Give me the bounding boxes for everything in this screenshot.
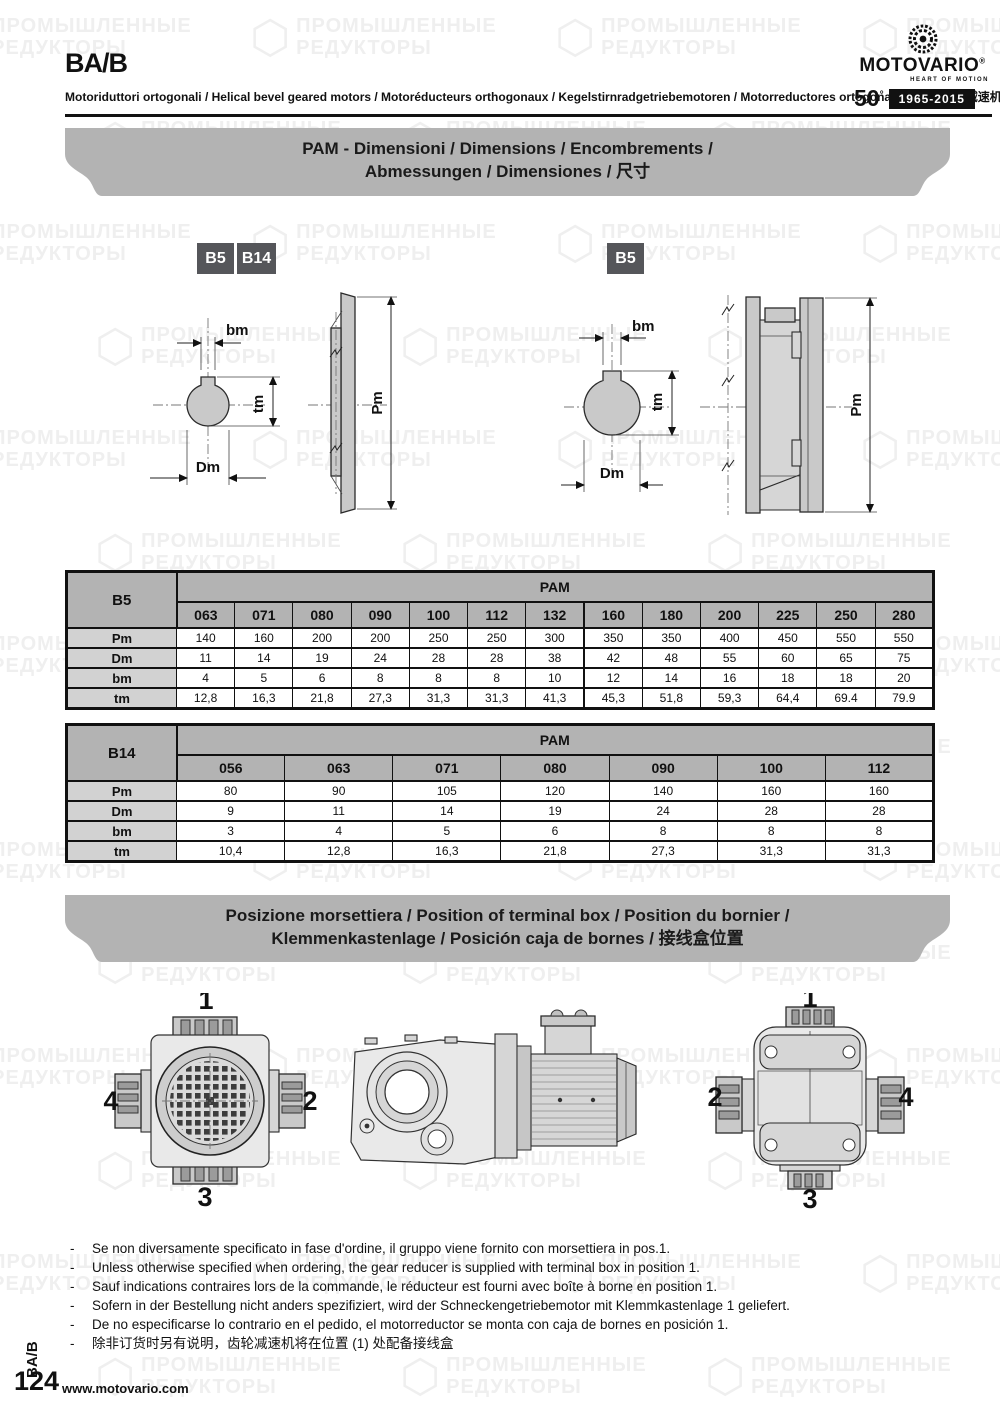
svg-text:Pm: Pm <box>369 391 386 414</box>
dimension-bm: bm <box>579 318 655 365</box>
position-number-4: 4 <box>103 1086 118 1116</box>
website-link[interactable]: www.motovario.com <box>62 1381 189 1396</box>
table-group-header: PAM <box>177 725 934 756</box>
table-cell: 55 <box>700 648 758 668</box>
terminal-box-banner: Posizione morsettiera / Position of term… <box>65 895 950 962</box>
table-cell: 24 <box>351 648 409 668</box>
table-cell: 10 <box>526 668 584 688</box>
motor-housing <box>151 1035 269 1167</box>
table-cell: 18 <box>817 668 875 688</box>
column-header: 112 <box>825 755 933 781</box>
table-cell: 8 <box>717 821 825 841</box>
svg-text:bm: bm <box>226 322 249 339</box>
terminal-box-left <box>115 1070 151 1132</box>
row-label: Dm <box>67 648 177 668</box>
column-header: 100 <box>409 602 467 628</box>
table-cell: 3 <box>177 821 285 841</box>
table-cell: 8 <box>609 821 717 841</box>
motor-body <box>754 1027 866 1165</box>
page-number: 124 <box>14 1366 59 1397</box>
column-header: 250 <box>817 602 875 628</box>
table-cell: 28 <box>825 801 933 821</box>
table-cell: 51,8 <box>642 688 700 709</box>
b14-table-section: B14PAM056063071080090100112Pm80901051201… <box>65 723 935 863</box>
table-cell: 200 <box>351 628 409 648</box>
brand-name: MOTOVARIO® <box>850 56 995 75</box>
table-cell: 11 <box>177 648 235 668</box>
column-header: 180 <box>642 602 700 628</box>
b14-dimension-table: B14PAM056063071080090100112Pm80901051201… <box>65 723 935 863</box>
dimension-drawing-b5: bm tm Dm <box>560 280 890 530</box>
footnote-de: -Sofern in der Bestellung nicht anders s… <box>70 1296 790 1315</box>
table-cell: 24 <box>609 801 717 821</box>
row-label: tm <box>67 841 177 862</box>
motor-terminal-box <box>541 1010 595 1054</box>
table-cell: 250 <box>468 628 526 648</box>
table-cell: 28 <box>468 648 526 668</box>
table-cell: 6 <box>501 821 609 841</box>
table-cell: 160 <box>235 628 293 648</box>
table-cell: 14 <box>235 648 293 668</box>
table-cell: 10,4 <box>177 841 285 862</box>
table-cell: 350 <box>584 628 642 648</box>
footnote-fr: -Sauf indications contraires lors de la … <box>70 1277 790 1296</box>
anniversary-number: 50° <box>854 87 884 110</box>
column-header: 071 <box>235 602 293 628</box>
terminal-banner-text: Posizione morsettiera / Position of term… <box>65 904 950 950</box>
motovario-logo: MOTOVARIO® HEART OF MOTION 50° 1965-2015 <box>850 22 995 110</box>
table-cell: 140 <box>177 628 235 648</box>
table-cell: 12 <box>584 668 642 688</box>
footnote-it: -Se non diversamente specificato in fase… <box>70 1239 790 1258</box>
shaft-section <box>187 377 229 426</box>
table-cell: 200 <box>293 628 351 648</box>
gearbox-body <box>351 1035 503 1164</box>
column-header: 200 <box>700 602 758 628</box>
svg-text:tm: tm <box>649 393 666 411</box>
table-cell: 18 <box>759 668 817 688</box>
dimension-pm: Pm <box>825 298 877 512</box>
table-cell: 31,3 <box>717 841 825 862</box>
shaft-section <box>584 371 640 435</box>
table-cell: 14 <box>642 668 700 688</box>
footnotes: -Se non diversamente specificato in fase… <box>70 1239 790 1353</box>
column-header: 280 <box>875 602 933 628</box>
terminal-box-right <box>269 1070 305 1132</box>
dimension-bm: bm <box>177 322 249 370</box>
table-cell: 75 <box>875 648 933 668</box>
table-cell: 16,3 <box>393 841 501 862</box>
dimension-dm: Dm <box>561 440 663 492</box>
position-number-3: 3 <box>197 1182 212 1211</box>
table-cell: 41,3 <box>526 688 584 709</box>
table-cell: 5 <box>235 668 293 688</box>
table-cell: 550 <box>875 628 933 648</box>
table-cell: 69.4 <box>817 688 875 709</box>
table-cell: 16 <box>700 668 758 688</box>
table-cell: 8 <box>409 668 467 688</box>
motor-flange <box>495 1034 531 1158</box>
position-number-1: 1 <box>802 993 817 1013</box>
table-cell: 250 <box>409 628 467 648</box>
table-cell: 6 <box>293 668 351 688</box>
terminal-position-rear-view: 1 2 3 4 <box>95 993 325 1211</box>
table-cell: 8 <box>825 821 933 841</box>
geared-motor-side-view <box>345 1008 665 1188</box>
column-header: 090 <box>609 755 717 781</box>
dimension-pm: Pm <box>357 297 397 509</box>
table-cell: 45,3 <box>584 688 642 709</box>
pam-banner-text: PAM - Dimensioni / Dimensions / Encombre… <box>65 137 950 183</box>
table-cell: 31,3 <box>468 688 526 709</box>
table-cell: 550 <box>817 628 875 648</box>
svg-text:Dm: Dm <box>196 459 220 476</box>
table-cell: 12,8 <box>177 688 235 709</box>
table-cell: 59,3 <box>700 688 758 709</box>
page-title: BA/B <box>65 48 127 79</box>
table-cell: 120 <box>501 781 609 801</box>
row-label: Dm <box>67 801 177 821</box>
position-number-1: 1 <box>198 993 213 1015</box>
table-cell: 400 <box>700 628 758 648</box>
table-cell: 16,3 <box>235 688 293 709</box>
table-cell: 160 <box>825 781 933 801</box>
table-cell: 27,3 <box>609 841 717 862</box>
column-header: 090 <box>351 602 409 628</box>
table-cell: 28 <box>409 648 467 668</box>
table-cell: 48 <box>642 648 700 668</box>
table-cell: 4 <box>177 668 235 688</box>
table-cell: 9 <box>177 801 285 821</box>
table-cell: 140 <box>609 781 717 801</box>
position-number-3: 3 <box>802 1184 817 1211</box>
table-cell: 300 <box>526 628 584 648</box>
row-label: tm <box>67 688 177 709</box>
table-cell: 5 <box>393 821 501 841</box>
column-header: 080 <box>293 602 351 628</box>
table-cell: 105 <box>393 781 501 801</box>
position-number-4: 4 <box>898 1082 913 1112</box>
badge-b14-left: B14 <box>237 243 276 274</box>
column-header: 112 <box>468 602 526 628</box>
flange-section-view <box>722 295 823 515</box>
table-cell: 21,8 <box>293 688 351 709</box>
position-number-2: 2 <box>707 1082 722 1112</box>
table-corner-label: B5 <box>67 572 177 629</box>
svg-text:Dm: Dm <box>600 465 624 482</box>
table-cell: 350 <box>642 628 700 648</box>
column-header: 225 <box>759 602 817 628</box>
table-cell: 60 <box>759 648 817 668</box>
table-cell: 28 <box>717 801 825 821</box>
row-label: Pm <box>67 781 177 801</box>
footnote-en: -Unless otherwise specified when orderin… <box>70 1258 790 1277</box>
badge-b5-left: B5 <box>197 243 234 274</box>
footnote-es: -De no especificarse lo contrario en el … <box>70 1315 790 1334</box>
table-cell: 79.9 <box>875 688 933 709</box>
anniversary-years: 1965-2015 <box>889 89 975 109</box>
svg-text:Pm: Pm <box>848 393 865 416</box>
table-cell: 21,8 <box>501 841 609 862</box>
table-cell: 14 <box>393 801 501 821</box>
column-header: 063 <box>177 602 235 628</box>
table-cell: 31,3 <box>825 841 933 862</box>
column-header: 056 <box>177 755 285 781</box>
column-header: 080 <box>501 755 609 781</box>
table-cell: 42 <box>584 648 642 668</box>
svg-text:tm: tm <box>250 395 267 413</box>
position-number-2: 2 <box>302 1086 317 1116</box>
row-label: Pm <box>67 628 177 648</box>
table-cell: 4 <box>285 821 393 841</box>
row-label: bm <box>67 821 177 841</box>
column-header: 063 <box>285 755 393 781</box>
table-group-header: PAM <box>177 572 934 603</box>
pam-banner: PAM - Dimensioni / Dimensions / Encombre… <box>65 128 950 196</box>
brand-tagline: HEART OF MOTION <box>850 77 995 83</box>
svg-text:bm: bm <box>632 318 655 335</box>
table-cell: 20 <box>875 668 933 688</box>
b5-table-section: B5PAM06307108009010011213216018020022525… <box>65 570 935 710</box>
dimension-drawing-b5-b14: bm tm Dm Pm <box>95 280 425 530</box>
b5-dimension-table: B5PAM06307108009010011213216018020022525… <box>65 570 935 710</box>
table-cell: 8 <box>468 668 526 688</box>
table-cell: 80 <box>177 781 285 801</box>
table-cell: 38 <box>526 648 584 668</box>
column-header: 071 <box>393 755 501 781</box>
row-label: bm <box>67 668 177 688</box>
flange-side-view <box>330 293 355 513</box>
anniversary-logo: 50° 1965-2015 <box>850 87 995 110</box>
table-cell: 11 <box>285 801 393 821</box>
footnote-zh: -除非订货时另有说明，齿轮减速机将在位置 (1) 处配备接线盒 <box>70 1334 790 1353</box>
table-cell: 27,3 <box>351 688 409 709</box>
table-cell: 64,4 <box>759 688 817 709</box>
table-cell: 65 <box>817 648 875 668</box>
table-cell: 19 <box>293 648 351 668</box>
table-cell: 19 <box>501 801 609 821</box>
column-header: 100 <box>717 755 825 781</box>
badge-b5-right: B5 <box>607 243 644 274</box>
registered-mark: ® <box>979 57 985 66</box>
header-divider <box>65 114 992 117</box>
column-header: 160 <box>584 602 642 628</box>
gear-rosette-icon <box>906 22 940 56</box>
table-cell: 8 <box>351 668 409 688</box>
page-subtitle: Motoriduttori ortogonali / Helical bevel… <box>65 88 865 105</box>
terminal-position-front-view: 1 2 3 4 <box>690 993 930 1211</box>
table-corner-label: B14 <box>67 725 177 782</box>
motor-body <box>531 1054 636 1146</box>
table-cell: 12,8 <box>285 841 393 862</box>
column-header: 132 <box>526 602 584 628</box>
table-cell: 450 <box>759 628 817 648</box>
table-cell: 31,3 <box>409 688 467 709</box>
table-cell: 160 <box>717 781 825 801</box>
table-cell: 90 <box>285 781 393 801</box>
